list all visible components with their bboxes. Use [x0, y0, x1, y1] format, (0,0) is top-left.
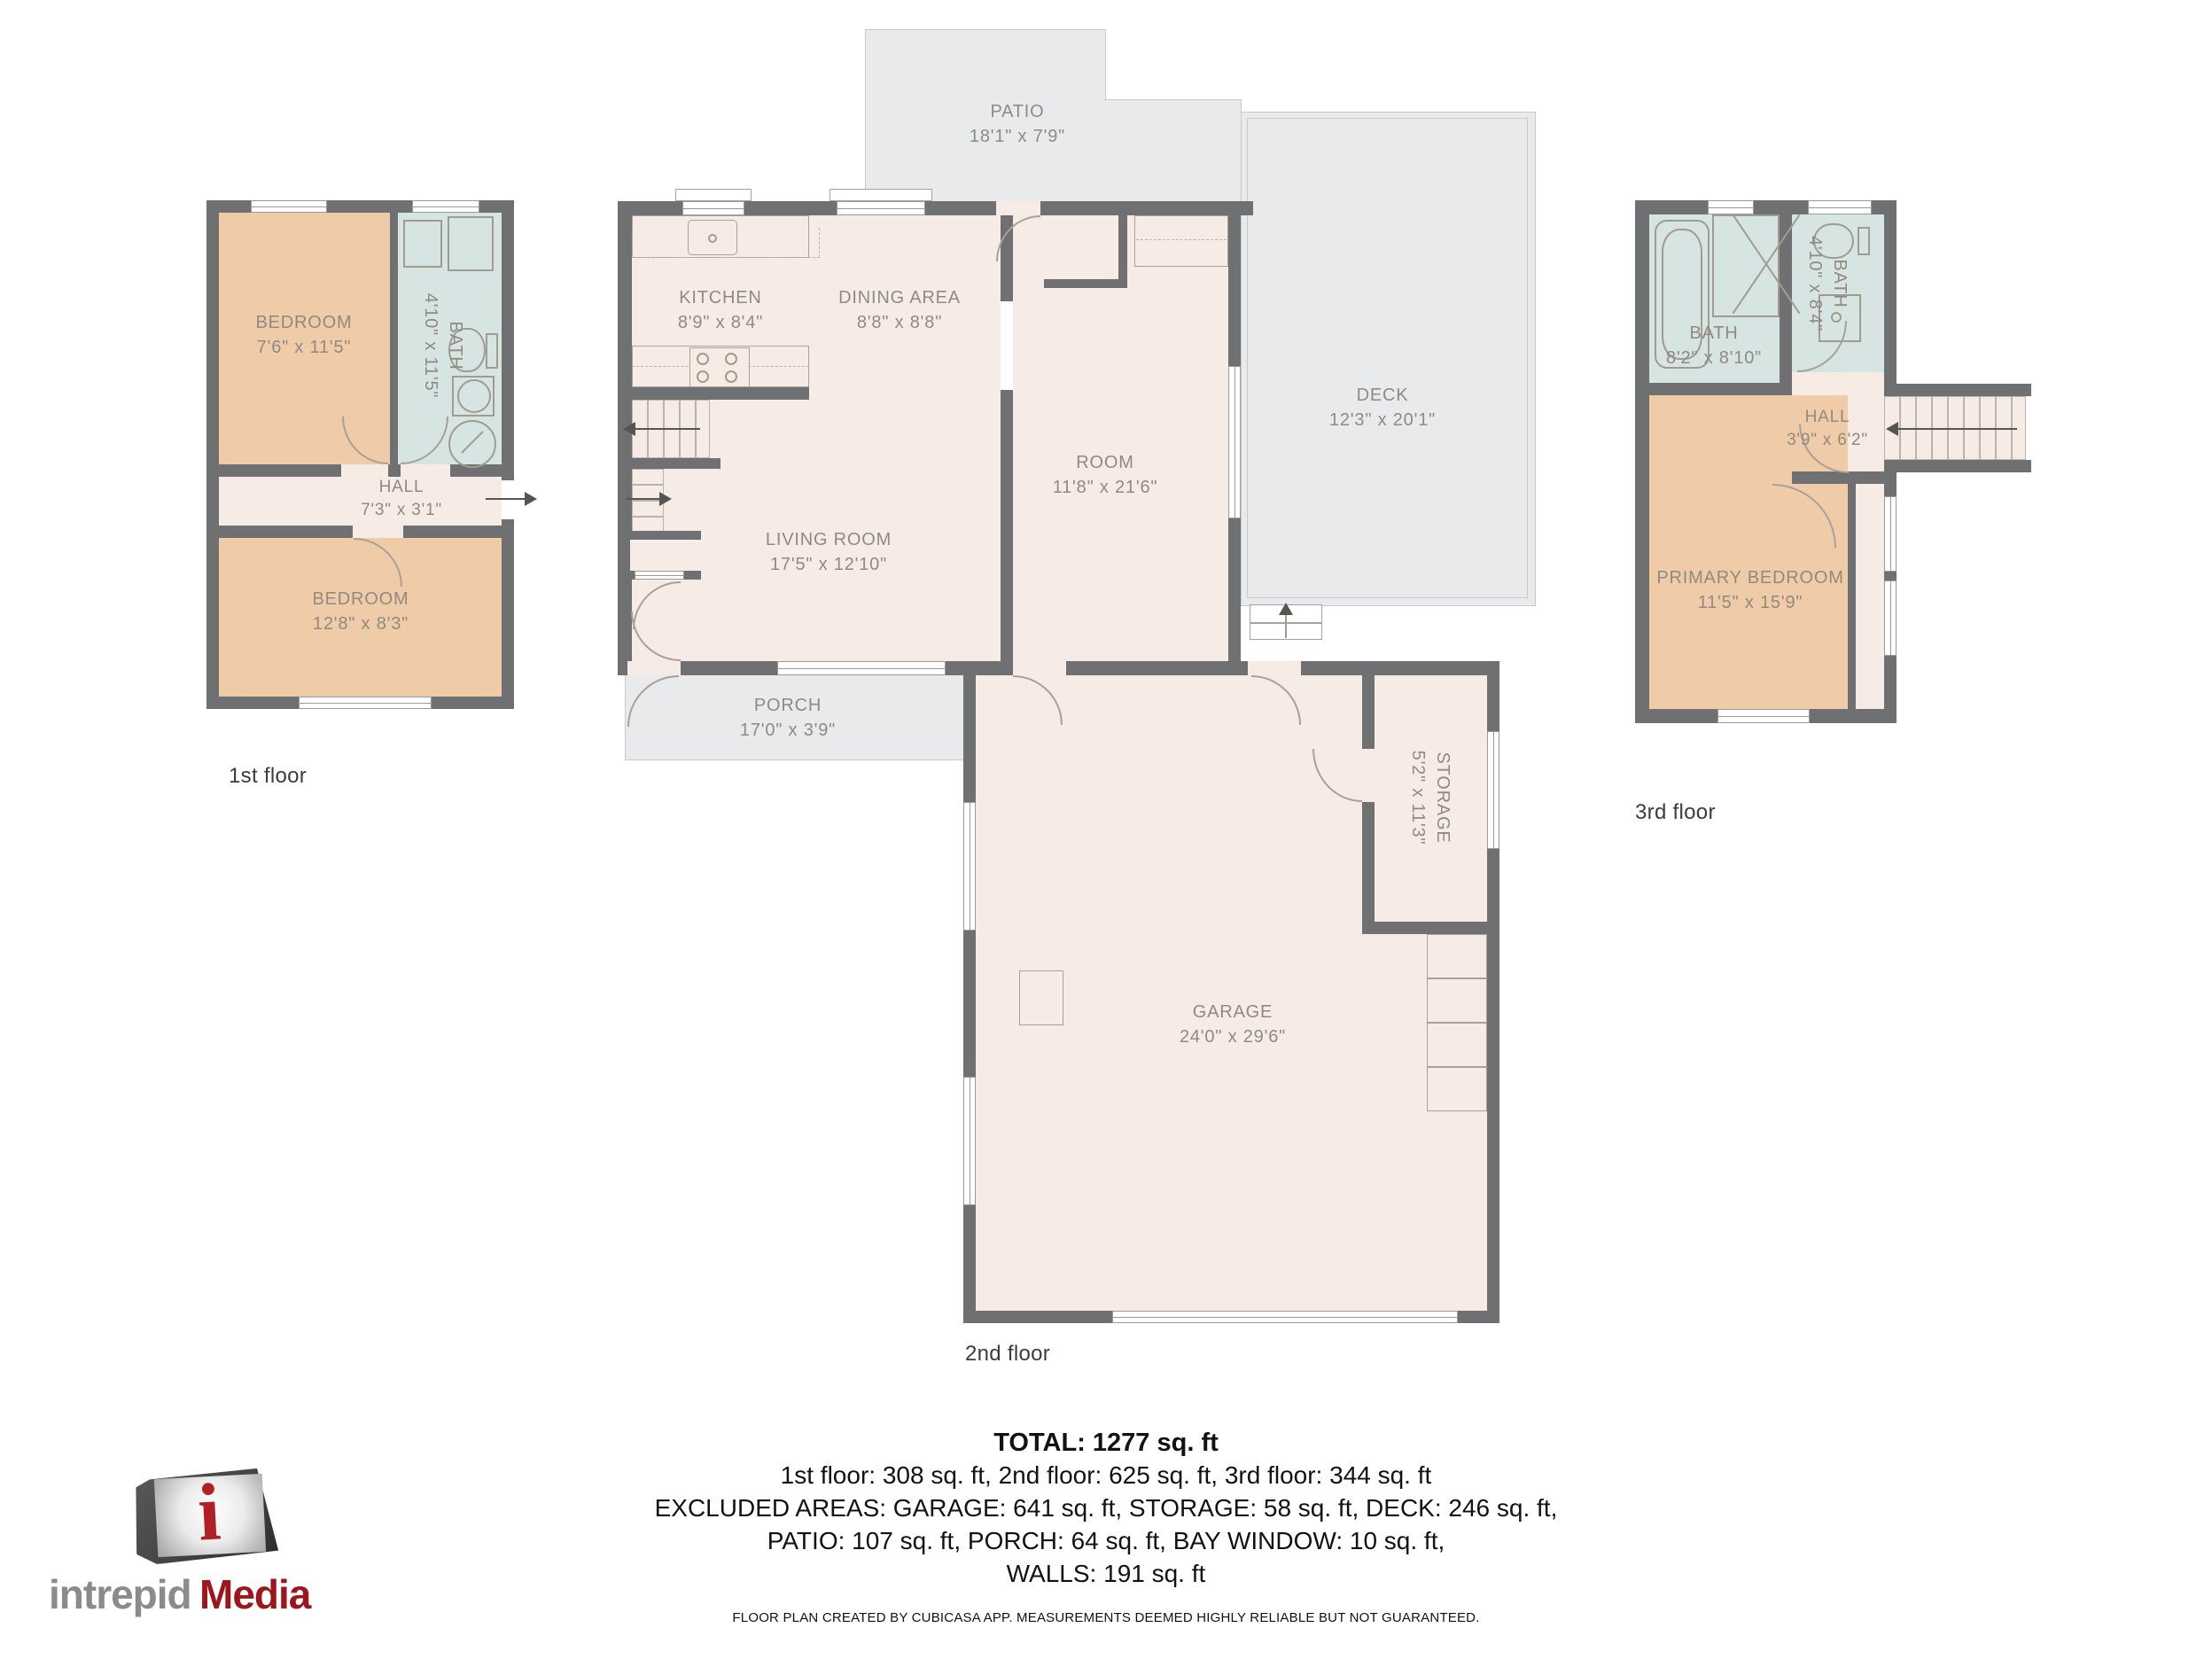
excluded-areas-text-2: PATIO: 107 sq. ft, PORCH: 64 sq. ft, BAY… — [0, 1527, 2212, 1555]
room-label-living: LIVING ROOM 17'5" x 12'10" — [766, 527, 892, 577]
window — [1487, 731, 1499, 849]
room-label-bath-main: BATH 8'2" x 8'10" — [1666, 321, 1762, 370]
floor-label-1: 1st floor — [229, 764, 307, 789]
cabinet — [1427, 934, 1487, 978]
room-label-hall-1: HALL 7'3" x 3'1" — [361, 476, 442, 522]
logo-text-intrepid: intrepid — [49, 1570, 191, 1618]
bay-window-area — [630, 540, 699, 571]
cabinet — [1427, 978, 1487, 1023]
room-label-porch: PORCH 17'0" x 3'9" — [740, 693, 836, 743]
logo-text-media: Media — [199, 1570, 310, 1618]
closet-strip-area — [1856, 484, 1884, 709]
room-label-bedroom-1: BEDROOM 7'6" x 11'5" — [256, 310, 353, 360]
toilet-tank-icon — [486, 333, 498, 369]
toilet-tank-icon — [1858, 227, 1870, 255]
exit-arrow — [486, 498, 528, 500]
room-label-hall-3: HALL 3'9" x 6'2" — [1787, 406, 1868, 452]
cabinet — [1427, 1067, 1487, 1111]
room-label-bath-1: BATH 4'10" x 11'5" — [418, 293, 468, 399]
room-label-dining: DINING AREA 8'8" x 8'8" — [838, 285, 961, 335]
window — [1228, 366, 1241, 518]
window — [251, 200, 327, 213]
cabinet — [1427, 1023, 1487, 1067]
washer-icon — [403, 220, 442, 268]
dryer-icon — [448, 216, 494, 271]
walls-area-text: WALLS: 191 sq. ft — [0, 1560, 2212, 1588]
room-label-garage: GARAGE 24'0" x 29'6" — [1180, 1000, 1286, 1049]
excluded-areas-text-1: EXCLUDED AREAS: GARAGE: 641 sq. ft, STOR… — [0, 1494, 2212, 1523]
patio-area-ext — [1103, 99, 1242, 203]
room-label-bath-small: BATH 4'10" x 8'4" — [1803, 236, 1852, 331]
room-label-primary-bedroom: PRIMARY BEDROOM 11'5" x 15'9" — [1656, 565, 1843, 615]
window — [1708, 200, 1754, 214]
room-label-patio: PATIO 18'1" x 7'9" — [970, 99, 1065, 149]
room-label-storage: STORAGE 5'2" x 11'3" — [1406, 751, 1455, 845]
floorplan-canvas: BEDROOM 7'6" x 11'5" BATH 4'10" x 11'5" … — [0, 0, 2212, 1659]
water-heater-icon — [448, 420, 496, 468]
window — [682, 201, 744, 215]
disclaimer-text: FLOOR PLAN CREATED BY CUBICASA APP. MEAS… — [0, 1610, 2212, 1625]
room-label-bedroom-2: BEDROOM 12'8" x 8'3" — [313, 587, 409, 636]
total-area-text: TOTAL: 1277 sq. ft — [0, 1429, 2212, 1458]
floor-label-2: 2nd floor — [965, 1342, 1050, 1367]
window — [837, 201, 925, 215]
window — [1808, 200, 1872, 214]
window — [635, 571, 684, 580]
window — [1884, 496, 1897, 572]
room-label-deck: DECK 12'3" x 20'1" — [1329, 383, 1436, 432]
floor-areas-text: 1st floor: 308 sq. ft, 2nd floor: 625 sq… — [0, 1461, 2212, 1490]
floor-label-3: 3rd floor — [1635, 800, 1716, 825]
logo-cube-letter: i — [190, 1468, 230, 1555]
utility-box — [1019, 970, 1063, 1025]
room-label-room: ROOM 11'8" x 21'6" — [1053, 450, 1158, 500]
window — [963, 1077, 976, 1205]
garage-door — [1112, 1311, 1458, 1323]
window — [1717, 709, 1810, 723]
window — [963, 802, 976, 931]
room-label-kitchen: KITCHEN 8'9" x 8'4" — [678, 285, 763, 335]
window — [1884, 580, 1897, 656]
window — [777, 661, 946, 675]
shower-icon — [1712, 214, 1780, 317]
window — [299, 697, 432, 709]
window — [412, 200, 479, 213]
